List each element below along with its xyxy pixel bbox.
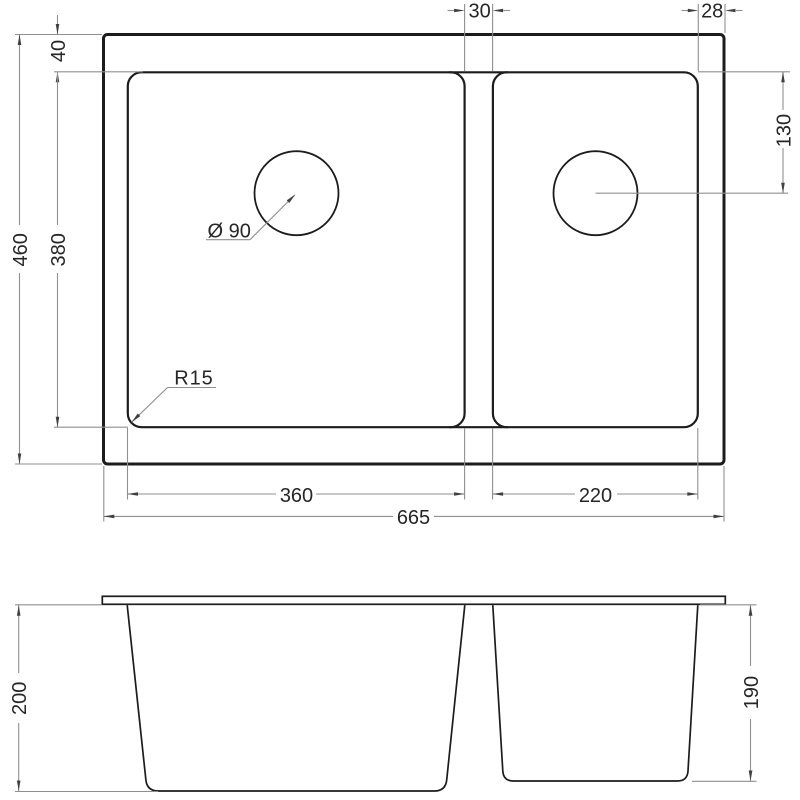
svg-text:30: 30 (468, 0, 490, 22)
svg-text:220: 220 (579, 485, 612, 507)
svg-text:190: 190 (741, 676, 763, 709)
svg-text:380: 380 (48, 233, 70, 266)
svg-text:40: 40 (48, 40, 70, 62)
svg-text:28: 28 (701, 0, 723, 22)
svg-text:Ø 90: Ø 90 (208, 220, 251, 242)
svg-text:200: 200 (9, 682, 31, 715)
svg-text:665: 665 (397, 507, 430, 529)
svg-text:R15: R15 (174, 367, 213, 389)
svg-text:460: 460 (10, 233, 32, 266)
svg-text:130: 130 (773, 114, 795, 147)
svg-text:360: 360 (280, 485, 313, 507)
